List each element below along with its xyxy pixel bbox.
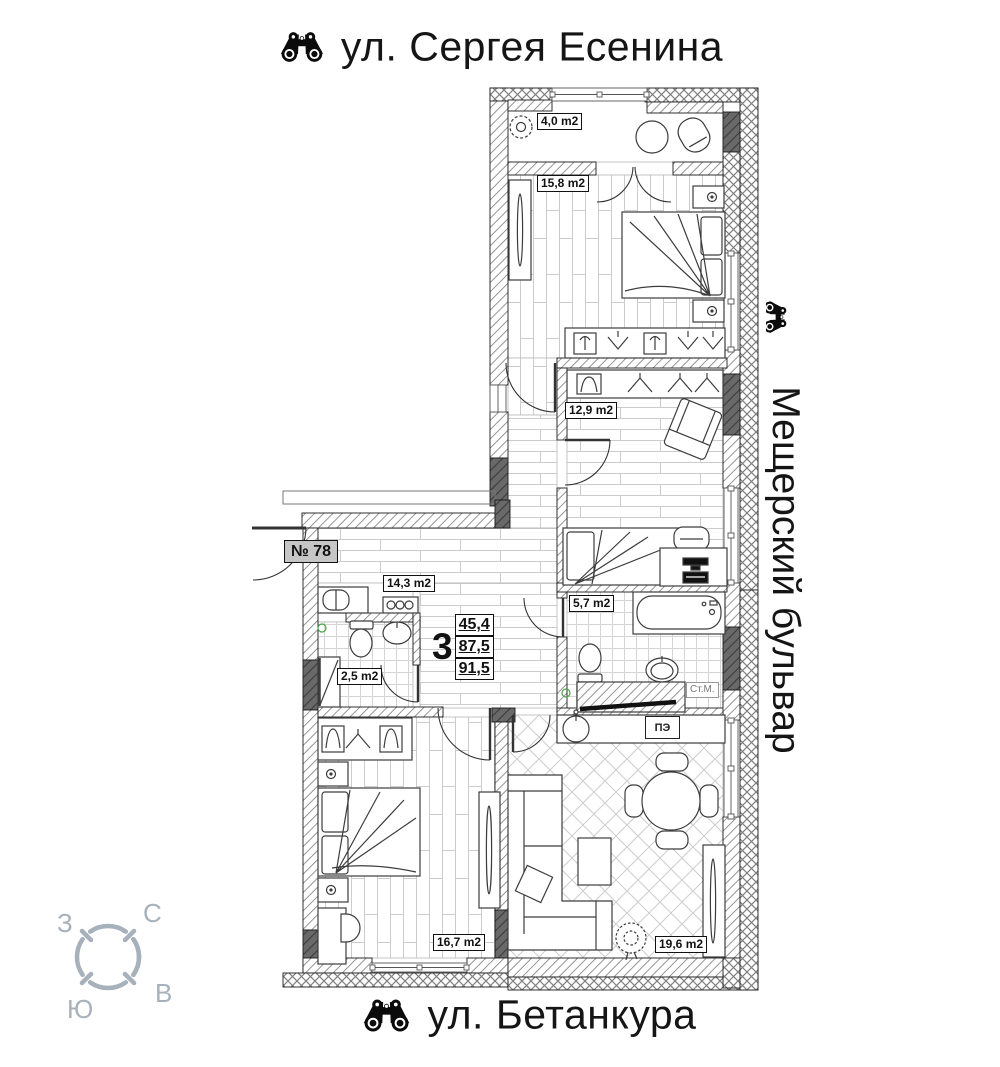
window-bedroom-master: [724, 251, 738, 352]
area-label-balcony: 4,0 m2: [537, 113, 582, 130]
window-balcony-top: [550, 88, 649, 101]
street-bottom: ул. Бетанкура: [360, 992, 697, 1039]
area-label-hallway: 14,3 m2: [383, 575, 435, 592]
area-label-bedroom-kids: 12,9 m2: [565, 402, 617, 419]
nightstand-second-2: [318, 878, 348, 902]
apartment-number: № 78: [284, 540, 338, 563]
plant-balcony: [510, 116, 532, 138]
desk-chair-kids: [674, 527, 709, 550]
bathroom-counter: [577, 682, 685, 712]
window-bedroom-second: [370, 963, 469, 972]
floorplan-drawing: С З В Ю: [0, 0, 1000, 1067]
window-corridor-west: [490, 385, 506, 412]
area-label-wc: 2,5 m2: [337, 668, 382, 685]
toilet-wc: [350, 621, 373, 657]
hall-unit: [383, 597, 418, 613]
street-right: Мещерский бульвар: [763, 386, 807, 753]
window-living: [724, 718, 738, 819]
living-area-value: 45,4: [455, 614, 494, 636]
binoculars-icon-bottom: [360, 997, 414, 1033]
apartment-info: 3 45,4 87,5 91,5: [432, 614, 494, 680]
nightstand-second-1: [318, 762, 348, 786]
compass-south: Ю: [67, 994, 93, 1024]
street-top-label: ул. Сергея Есенина: [341, 24, 723, 71]
dining-table: [642, 772, 700, 830]
tv-bedroom-second: [479, 792, 500, 908]
nightstand-master-1: [693, 186, 724, 208]
washing-machine-label: Ст.М.: [686, 682, 719, 698]
nightstand-master-2: [693, 300, 724, 322]
street-bottom-label: ул. Бетанкура: [428, 992, 697, 1039]
binoculars-icon: [277, 31, 327, 64]
compass-west: З: [57, 908, 73, 938]
desk-kids: [660, 548, 727, 586]
floor-hall-strip: [508, 415, 557, 528]
sink-wc: [383, 622, 411, 644]
electric-stove-label: ПЭ: [645, 716, 680, 739]
balcony-table: [636, 121, 668, 153]
area-label-living: 19,6 m2: [655, 936, 707, 953]
wardrobe-kids: [567, 370, 723, 398]
total-area-value: 91,5: [455, 658, 494, 680]
compass: С З В Ю: [57, 898, 172, 1024]
binoculars-icon-right: [766, 298, 804, 356]
compass-north: С: [143, 898, 162, 928]
bed-master: [622, 212, 725, 298]
bathtub: [633, 592, 725, 634]
tv-bedroom-master: [509, 180, 531, 280]
floor-area-value: 87,5: [455, 636, 494, 658]
rooms-count: 3: [432, 629, 453, 665]
kitchen-counter: [557, 710, 725, 743]
bed-second: [318, 788, 420, 876]
hall-cabinet: [318, 587, 368, 613]
compass-east: В: [155, 978, 172, 1008]
coffee-table: [578, 838, 611, 885]
floorplan-page: С З В Ю ул. Сергея Есенина Мещерский бул…: [0, 0, 1000, 1067]
toilet-bathroom: [578, 644, 602, 682]
floor-hallway-top: [318, 528, 557, 583]
area-label-bathroom: 5,7 m2: [569, 595, 614, 612]
street-right-label: Мещерский бульвар: [764, 386, 807, 753]
street-top: ул. Сергея Есенина: [277, 24, 723, 71]
wardrobe-master: [565, 328, 725, 358]
wardrobe-second: [318, 718, 412, 760]
area-label-bedroom-master: 15,8 m2: [537, 175, 589, 192]
area-label-bedroom-second: 16,7 m2: [433, 934, 485, 951]
